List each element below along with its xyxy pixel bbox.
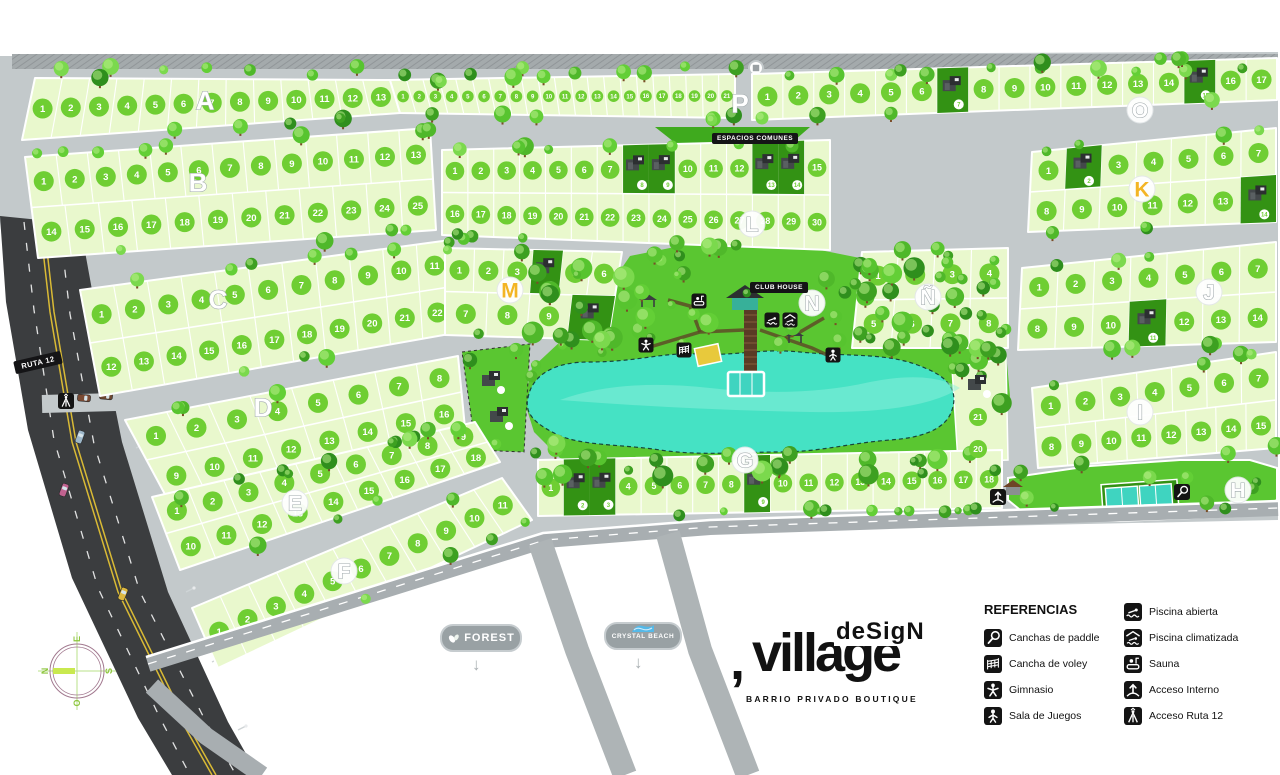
- tree-icon: [345, 248, 358, 261]
- tree-icon: [1050, 503, 1059, 512]
- svg-text:9: 9: [174, 471, 179, 482]
- svg-text:6: 6: [1221, 378, 1226, 389]
- tree-icon: [1237, 63, 1247, 73]
- lot-number-badge: 4: [1139, 268, 1159, 288]
- svg-text:21: 21: [400, 313, 411, 324]
- svg-text:23: 23: [346, 206, 357, 217]
- tree-icon: [544, 145, 553, 154]
- leaf-icon: [447, 631, 461, 645]
- lot-number-badge: 17: [430, 459, 450, 479]
- lot-number-badge: 30: [808, 213, 827, 232]
- svg-text:8: 8: [237, 97, 242, 108]
- tree-icon: [939, 505, 952, 518]
- svg-text:17: 17: [269, 335, 280, 346]
- svg-text:12: 12: [830, 477, 840, 487]
- lot-number-badge: 8: [1041, 437, 1061, 457]
- svg-text:10: 10: [209, 462, 220, 473]
- tree-icon: [624, 466, 633, 475]
- lot-number-badge: 22: [601, 208, 620, 227]
- open-pool-icon: [1124, 603, 1142, 621]
- svg-text:21: 21: [579, 212, 589, 222]
- svg-text:4: 4: [275, 406, 281, 417]
- lot-number-badge: 14: [323, 492, 343, 512]
- lot-number-badge: 1: [33, 99, 53, 119]
- lot-number-badge: 16: [232, 335, 252, 355]
- svg-text:K: K: [1134, 179, 1149, 202]
- svg-text:2: 2: [72, 174, 77, 185]
- forest-down-arrow-icon: ↓: [472, 655, 481, 675]
- svg-text:18: 18: [984, 474, 994, 484]
- svg-text:2: 2: [68, 103, 73, 114]
- svg-text:11: 11: [319, 94, 330, 105]
- lot-number-badge: 17: [471, 205, 490, 224]
- svg-text:3: 3: [950, 269, 955, 280]
- lot-number-badge: 11: [344, 149, 364, 169]
- svg-text:14: 14: [328, 497, 339, 508]
- svg-text:4: 4: [1146, 273, 1152, 284]
- block-letter-N: N: [799, 290, 825, 316]
- compass-south-letter: O: [72, 699, 82, 706]
- games-icon: [826, 348, 841, 363]
- tree-icon: [372, 495, 382, 505]
- legend-title: REFERENCIAS: [984, 602, 1077, 617]
- svg-text:16: 16: [439, 410, 450, 421]
- tree-icon: [680, 61, 690, 71]
- games-icon: [984, 707, 1002, 725]
- svg-text:3: 3: [827, 90, 832, 101]
- lot-number-badge: 6: [349, 385, 369, 405]
- lot-number-badge: 2: [413, 91, 425, 103]
- svg-text:15: 15: [204, 346, 215, 357]
- svg-text:21: 21: [724, 94, 731, 100]
- lot-number-badge: 7: [1249, 143, 1269, 163]
- svg-text:17: 17: [146, 220, 157, 231]
- tree-icon: [335, 113, 345, 123]
- legend-item-label: Cancha de voley: [1009, 658, 1087, 670]
- svg-text:15: 15: [79, 225, 90, 236]
- svg-text:7: 7: [608, 165, 613, 175]
- svg-text:14: 14: [171, 351, 182, 362]
- lot-number-badge: 9: [258, 91, 278, 111]
- lot-number-badge: 3: [497, 161, 516, 180]
- lot-number-badge: 12: [281, 439, 301, 459]
- tree-icon: [530, 447, 541, 458]
- svg-text:16: 16: [1225, 76, 1236, 87]
- svg-text:8: 8: [981, 84, 986, 95]
- lot-number-badge: 13: [1213, 191, 1233, 211]
- forest-badge: FOREST: [440, 624, 522, 652]
- logo-subtitle: BARRIO PRIVADO BOUTIQUE: [746, 694, 918, 704]
- svg-text:10: 10: [1040, 82, 1051, 93]
- svg-text:6: 6: [358, 564, 363, 575]
- paddle-icon: [1174, 484, 1190, 500]
- svg-text:20: 20: [246, 213, 257, 224]
- svg-text:14: 14: [1226, 424, 1237, 435]
- lot-number-badge: 5: [549, 161, 568, 180]
- tree-icon: [171, 401, 184, 414]
- svg-text:26: 26: [709, 215, 719, 225]
- lot-number-badge: 14: [1248, 308, 1268, 328]
- lot-number-badge: 14: [608, 90, 620, 102]
- svg-text:9: 9: [265, 96, 270, 107]
- block-letter-H: H: [1225, 477, 1251, 503]
- svg-text:14: 14: [1164, 78, 1175, 89]
- legend-column-left: Canchas de paddleCancha de voleyGimnasio…: [984, 628, 1100, 732]
- svg-text:3: 3: [1109, 276, 1114, 287]
- svg-text:7: 7: [299, 280, 304, 291]
- svg-text:7: 7: [396, 382, 401, 393]
- svg-text:17: 17: [476, 210, 486, 220]
- route12-access-icon: [1124, 707, 1142, 725]
- lot-number-badge: 10: [464, 508, 484, 528]
- lot-number-badge: 6: [670, 476, 689, 495]
- svg-text:24: 24: [379, 203, 390, 214]
- tree-icon: [525, 370, 537, 382]
- lot-number-badge: 2: [65, 169, 85, 189]
- lot-number-badge: 8: [230, 92, 250, 112]
- svg-text:11: 11: [709, 164, 718, 174]
- legend-item-label: Acceso Interno: [1149, 684, 1219, 696]
- block-letter-J: J: [1196, 279, 1222, 305]
- tree-icon: [666, 140, 677, 151]
- tree-icon: [1246, 349, 1257, 360]
- tree-icon: [850, 278, 861, 289]
- lot-number-badge: 14: [1159, 73, 1179, 93]
- svg-text:12: 12: [1182, 199, 1193, 210]
- svg-text:7: 7: [463, 309, 468, 320]
- lot-number-badge: 14: [41, 222, 61, 242]
- svg-text:14: 14: [1261, 212, 1268, 218]
- tree-icon: [491, 439, 502, 450]
- svg-text:13: 13: [594, 94, 601, 100]
- svg-text:13: 13: [768, 183, 775, 189]
- svg-text:7: 7: [703, 480, 708, 490]
- forest-badge-label: FOREST: [464, 632, 515, 644]
- compass-west-letter: N: [40, 668, 50, 675]
- lot-number-badge: 13: [134, 351, 154, 371]
- svg-text:19: 19: [691, 94, 698, 100]
- lot-number-badge: 2: [187, 418, 207, 438]
- model-lot-number-badge: 9: [758, 497, 768, 507]
- lot-number-badge: 9: [436, 521, 456, 541]
- svg-text:5: 5: [153, 100, 159, 111]
- svg-text:1: 1: [548, 483, 553, 493]
- tree-icon: [464, 68, 477, 81]
- tree-icon: [225, 263, 237, 275]
- svg-text:5: 5: [1182, 270, 1188, 281]
- model-lot-number-badge: 2: [1084, 176, 1094, 186]
- svg-text:15: 15: [364, 486, 375, 497]
- lot-number-badge: 1: [146, 426, 166, 446]
- club-house-label: CLUB HOUSE: [750, 282, 808, 293]
- svg-text:11: 11: [1071, 81, 1082, 92]
- svg-text:4: 4: [199, 295, 205, 306]
- svg-text:14: 14: [1252, 313, 1263, 324]
- svg-text:20: 20: [707, 94, 714, 100]
- svg-text:M: M: [501, 280, 519, 303]
- lot-number-badge: 16: [446, 205, 465, 224]
- svg-text:15: 15: [1256, 421, 1267, 432]
- svg-text:12: 12: [257, 519, 268, 530]
- lot-number-badge: 16: [395, 470, 415, 490]
- legend-item: Piscina climatizada: [1124, 628, 1238, 648]
- crystal-beach-badge: CRYSTAL BEACH: [604, 622, 682, 650]
- svg-text:2: 2: [194, 423, 199, 434]
- svg-text:11: 11: [804, 478, 813, 488]
- lot-number-badge: 9: [1072, 199, 1092, 219]
- lot-number-badge: 2: [61, 98, 81, 118]
- lot-number-badge: 11: [704, 159, 723, 178]
- svg-text:3: 3: [234, 415, 239, 426]
- svg-text:4: 4: [125, 101, 131, 112]
- lot-number-badge: 11: [559, 90, 571, 102]
- svg-text:22: 22: [313, 208, 324, 219]
- svg-text:7: 7: [227, 163, 232, 174]
- svg-text:11: 11: [349, 154, 360, 165]
- block-letter-B: B: [189, 167, 208, 197]
- legend-item-label: Sauna: [1149, 658, 1179, 670]
- lot-number-badge: 13: [319, 431, 339, 451]
- block-letter-M: M: [497, 277, 523, 303]
- svg-text:13: 13: [1133, 79, 1144, 90]
- lot-number-badge: 4: [850, 83, 870, 103]
- svg-text:13: 13: [1216, 315, 1227, 326]
- tree-icon: [707, 115, 718, 126]
- svg-text:19: 19: [528, 211, 538, 221]
- lot-number-badge: 1: [1041, 396, 1061, 416]
- lot-number-badge: 11: [799, 473, 818, 492]
- block-letter-G: G: [732, 447, 758, 473]
- lot-number-badge: 11: [1066, 76, 1086, 96]
- tree-icon: [333, 514, 342, 523]
- tree-icon: [673, 509, 685, 521]
- lot-number-badge: 12: [252, 514, 272, 534]
- lot-number-badge: 5: [158, 162, 178, 182]
- svg-text:19: 19: [334, 324, 345, 335]
- tree-icon: [674, 250, 685, 261]
- tree-icon: [486, 533, 498, 545]
- svg-text:14: 14: [362, 427, 373, 438]
- svg-text:9: 9: [443, 526, 448, 537]
- svg-text:13: 13: [1218, 197, 1229, 208]
- lot-number-badge: 5: [225, 285, 245, 305]
- legend-item: Sala de Juegos: [984, 706, 1100, 726]
- lot-number-badge: 7: [494, 91, 506, 103]
- lot-number-badge: 1: [446, 162, 465, 181]
- svg-text:12: 12: [380, 152, 391, 163]
- svg-text:15: 15: [907, 476, 917, 486]
- tree-icon: [1050, 259, 1063, 272]
- legend-item-label: Canchas de paddle: [1009, 632, 1100, 644]
- svg-text:2: 2: [210, 497, 215, 508]
- svg-text:L: L: [746, 214, 759, 237]
- tree-icon: [116, 245, 126, 255]
- svg-text:9: 9: [1079, 439, 1084, 450]
- lot-number-badge: 1: [449, 260, 469, 280]
- lot-number-badge: 15: [808, 158, 827, 177]
- lot-number-badge: 8: [1037, 201, 1057, 221]
- lot-number-badge: 21: [275, 205, 295, 225]
- lot-number-badge: 7: [1249, 368, 1269, 388]
- block-letter-I: I: [1127, 399, 1153, 425]
- svg-text:23: 23: [631, 213, 641, 223]
- svg-text:4: 4: [134, 170, 140, 181]
- svg-text:13: 13: [411, 150, 422, 161]
- lot-number-badge: 3: [819, 84, 839, 104]
- svg-text:11: 11: [430, 261, 441, 272]
- svg-text:6: 6: [582, 165, 587, 175]
- tree-icon: [894, 507, 902, 515]
- lot-number-badge: 10: [774, 474, 793, 493]
- lot-number-badge: 4: [117, 96, 137, 116]
- lot-number-badge: 1: [92, 304, 112, 324]
- svg-text:A: A: [196, 85, 215, 115]
- legend: REFERENCIAS Canchas de paddleCancha de v…: [972, 590, 1272, 735]
- brand-logo: , village deSigN BARRIO PRIVADO BOUTIQUE: [700, 612, 980, 722]
- voley-icon: [677, 343, 692, 358]
- svg-text:18: 18: [502, 210, 512, 220]
- lot-number-badge: 15: [1251, 416, 1271, 436]
- lot-number-badge: 12: [343, 88, 363, 108]
- svg-text:11: 11: [1150, 336, 1157, 342]
- paddle-icon: [984, 629, 1002, 647]
- lot-number-badge: 9: [539, 306, 559, 326]
- svg-text:29: 29: [786, 217, 796, 227]
- svg-text:4: 4: [1151, 157, 1157, 168]
- svg-text:8: 8: [505, 310, 510, 321]
- svg-text:5: 5: [888, 88, 894, 99]
- svg-text:11: 11: [498, 501, 509, 512]
- svg-text:21: 21: [279, 210, 290, 221]
- svg-text:20: 20: [973, 444, 983, 454]
- svg-text:Ñ: Ñ: [920, 287, 935, 310]
- lot-number-badge: 8: [511, 90, 523, 102]
- lot-number-badge: 20: [241, 207, 261, 227]
- svg-text:6: 6: [265, 285, 270, 296]
- block-letter-D: D: [254, 392, 273, 422]
- svg-text:N: N: [804, 293, 819, 316]
- internal-access-icon: [990, 489, 1006, 505]
- svg-text:14: 14: [46, 227, 57, 238]
- svg-text:1: 1: [452, 166, 457, 176]
- svg-text:7: 7: [948, 319, 953, 330]
- model-lot-number-badge: 14: [792, 180, 802, 190]
- lot-number-badge: 19: [330, 319, 350, 339]
- lot-number-badge: 11: [425, 256, 445, 276]
- svg-text:7: 7: [1256, 374, 1261, 385]
- lot-number-badge: 2: [1075, 391, 1095, 411]
- svg-text:16: 16: [399, 475, 410, 486]
- lot-number-badge: 10: [1035, 77, 1055, 97]
- tree-icon: [941, 257, 953, 269]
- lot-number-badge: 2: [1066, 274, 1086, 294]
- lot-number-badge: 20: [362, 313, 382, 333]
- lot-number-badge: 2: [471, 162, 490, 181]
- svg-text:18: 18: [471, 453, 482, 464]
- lot-number-badge: 7: [291, 275, 311, 295]
- svg-text:13: 13: [139, 357, 150, 368]
- svg-text:10: 10: [291, 95, 302, 106]
- open-pool-icon: [765, 313, 780, 328]
- lot-number-badge: 1: [34, 171, 54, 191]
- lot-number-badge: 14: [358, 422, 378, 442]
- svg-text:8: 8: [986, 318, 991, 329]
- lot-number-badge: 6: [258, 280, 278, 300]
- lot-number-badge: 14: [877, 472, 896, 491]
- legend-item: Acceso Interno: [1124, 680, 1238, 700]
- lot-number-badge: 21: [969, 408, 987, 426]
- lot-number-badge: 18: [497, 206, 516, 225]
- svg-text:22: 22: [432, 308, 443, 319]
- svg-text:D: D: [254, 392, 273, 422]
- lot-number-badge: 17: [656, 90, 668, 102]
- svg-text:16: 16: [113, 222, 124, 233]
- lot-number-badge: 19: [208, 210, 228, 230]
- lot-number-badge: 6: [594, 264, 614, 284]
- lot-number-badge: 17: [141, 215, 161, 235]
- tree-icon: [32, 148, 42, 158]
- model-lot-number-badge: 7: [954, 99, 964, 109]
- lot-number-badge: 13: [592, 90, 604, 102]
- lot-number-badge: 15: [75, 219, 95, 239]
- lot-number-badge: 13: [1191, 422, 1211, 442]
- svg-text:4: 4: [302, 589, 308, 600]
- lot-number-badge: 14: [167, 346, 187, 366]
- svg-text:25: 25: [683, 214, 693, 224]
- lot-number-badge: 9: [1005, 78, 1025, 98]
- svg-text:15: 15: [401, 418, 412, 429]
- svg-text:12: 12: [106, 362, 117, 373]
- svg-text:10: 10: [186, 542, 197, 553]
- legend-item: Acceso Ruta 12: [1124, 706, 1238, 726]
- lot-number-badge: 1: [757, 86, 777, 106]
- svg-text:10: 10: [683, 164, 693, 174]
- lot-number-badge: 6: [346, 454, 366, 474]
- lot-number-badge: 12: [1174, 311, 1194, 331]
- lot-number-badge: 24: [653, 209, 672, 228]
- tree-icon: [970, 502, 982, 514]
- svg-text:O: O: [1132, 100, 1148, 123]
- svg-text:11: 11: [562, 94, 569, 100]
- svg-text:14: 14: [794, 183, 801, 189]
- lot-number-badge: 18: [175, 212, 195, 232]
- lot-number-badge: 6: [478, 91, 490, 103]
- lot-number-badge: 16: [108, 217, 128, 237]
- svg-text:5: 5: [315, 398, 321, 409]
- tree-icon: [785, 71, 795, 81]
- lot-number-badge: 12: [825, 473, 844, 492]
- lot-number-badge: 10: [543, 90, 555, 102]
- lot-number-badge: 12: [101, 357, 121, 377]
- legend-item: Cancha de voley: [984, 654, 1100, 674]
- lot-number-badge: 15: [396, 413, 416, 433]
- svg-text:15: 15: [812, 163, 822, 173]
- svg-text:5: 5: [556, 165, 561, 175]
- lot-number-badge: 3: [239, 482, 259, 502]
- svg-text:10: 10: [1105, 320, 1116, 331]
- tree-icon: [385, 224, 398, 237]
- lot-number-badge: 8: [430, 368, 450, 388]
- svg-text:8: 8: [425, 441, 430, 452]
- svg-text:3: 3: [1116, 160, 1121, 171]
- svg-text:11: 11: [221, 530, 232, 541]
- svg-text:14: 14: [881, 476, 891, 486]
- tree-icon: [400, 225, 411, 236]
- route12-access-icon: [58, 393, 74, 409]
- model-lot-number-badge: 14: [1259, 209, 1269, 219]
- route12-access-road: [42, 402, 116, 404]
- lot-number-badge: 18: [466, 448, 486, 468]
